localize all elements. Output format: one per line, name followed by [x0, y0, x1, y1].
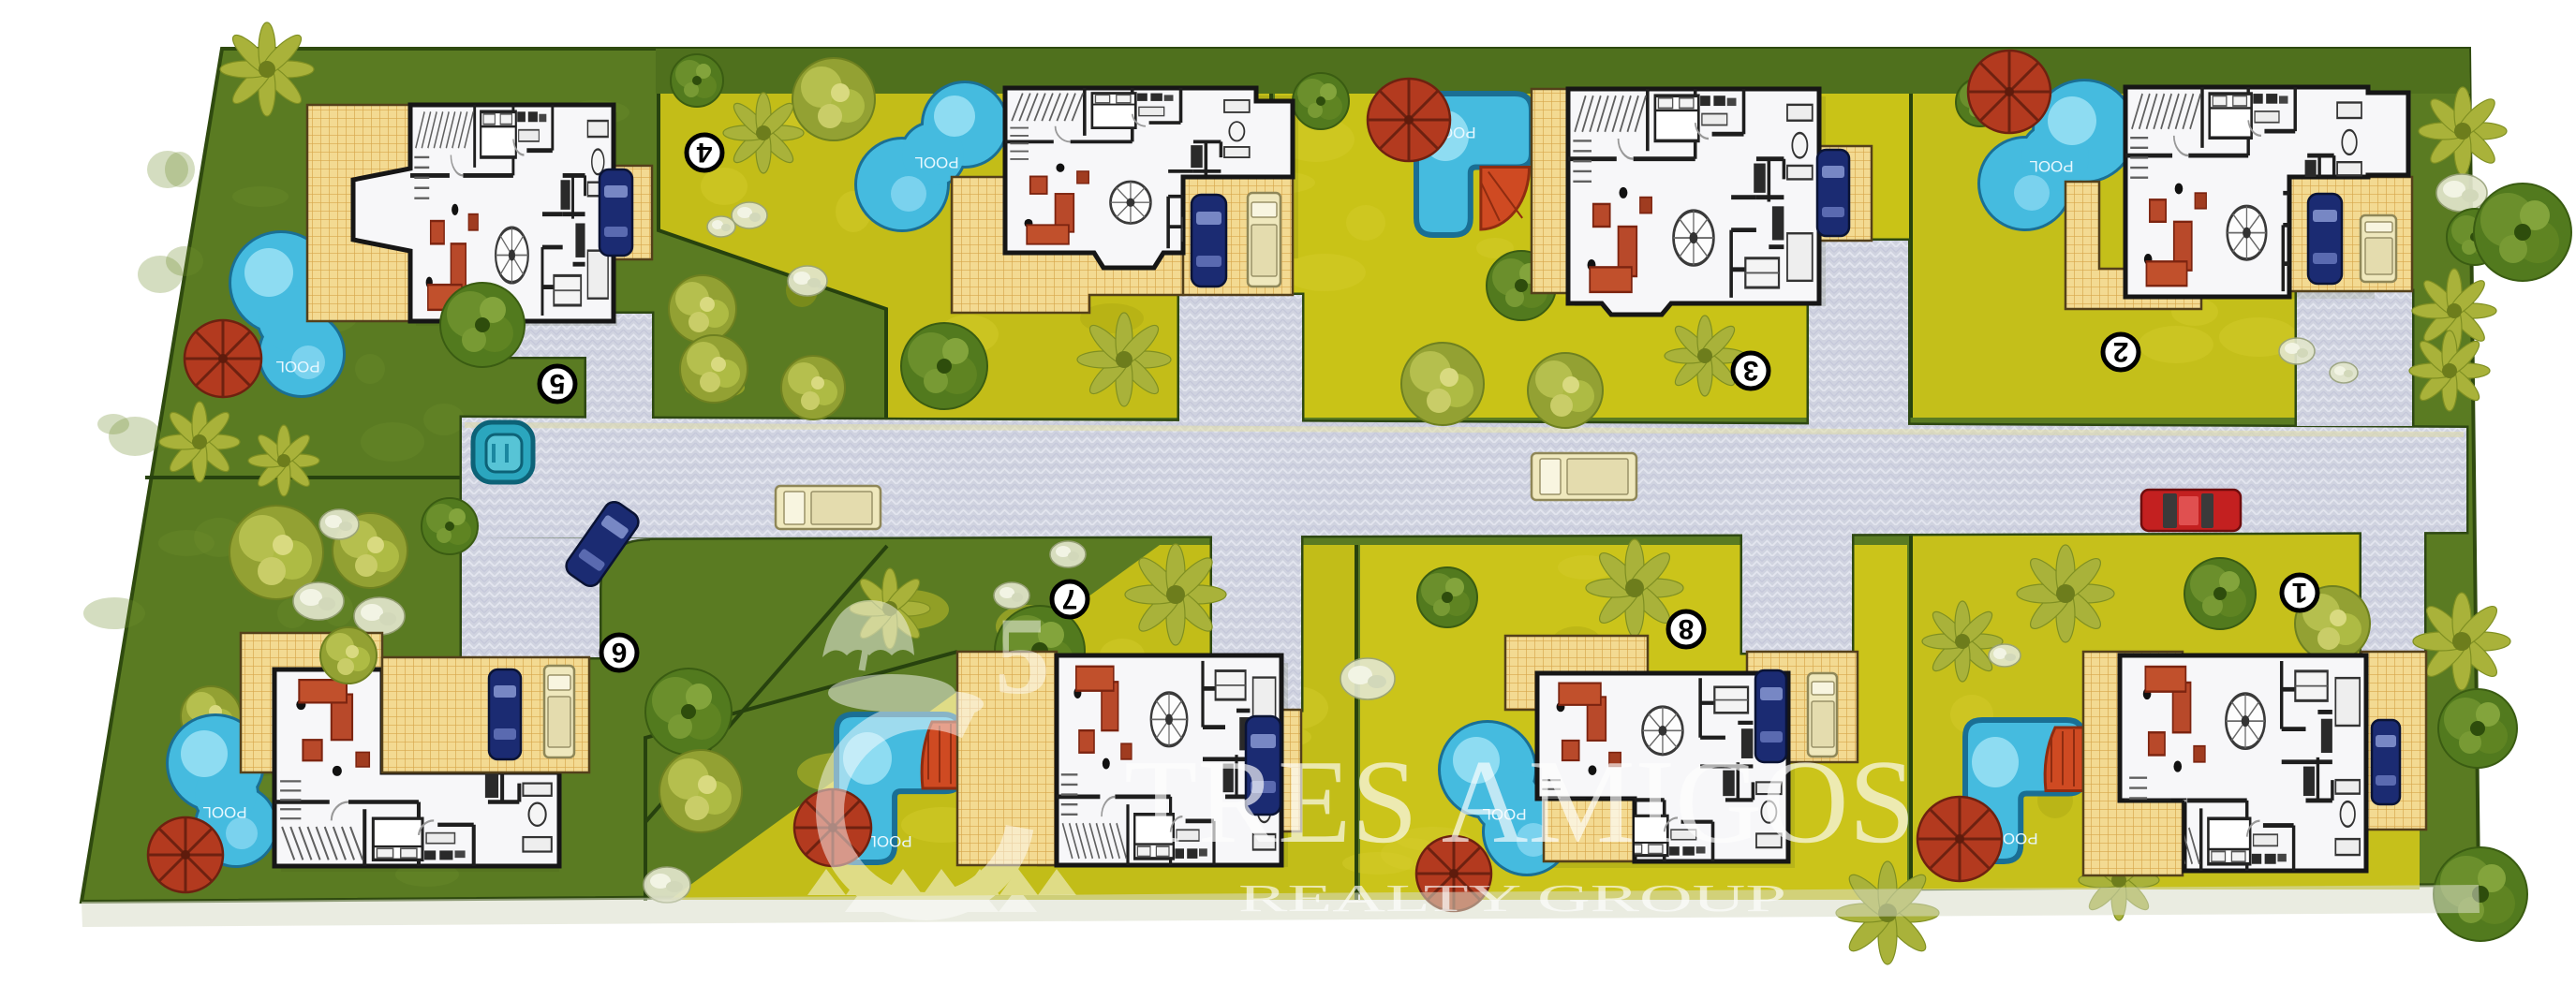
svg-text:5: 5 — [550, 368, 566, 399]
svg-text:7: 7 — [1062, 583, 1078, 614]
svg-text:1: 1 — [2292, 577, 2308, 608]
svg-text:POOL: POOL — [867, 832, 911, 850]
svg-text:3: 3 — [1743, 355, 1759, 386]
svg-text:2: 2 — [2113, 336, 2129, 367]
svg-text:4: 4 — [696, 137, 712, 168]
svg-text:5: 5 — [995, 595, 1050, 717]
svg-text:POOL: POOL — [275, 358, 319, 375]
svg-text:POOL: POOL — [2029, 157, 2073, 175]
svg-text:8: 8 — [1679, 613, 1695, 644]
svg-text:REALTY GROUP: REALTY GROUP — [1238, 876, 1786, 919]
svg-text:TRES AMIGOS: TRES AMIGOS — [1124, 735, 1916, 868]
svg-text:6: 6 — [612, 637, 628, 668]
svg-text:POOL: POOL — [202, 803, 246, 821]
svg-text:POOL: POOL — [914, 154, 958, 171]
